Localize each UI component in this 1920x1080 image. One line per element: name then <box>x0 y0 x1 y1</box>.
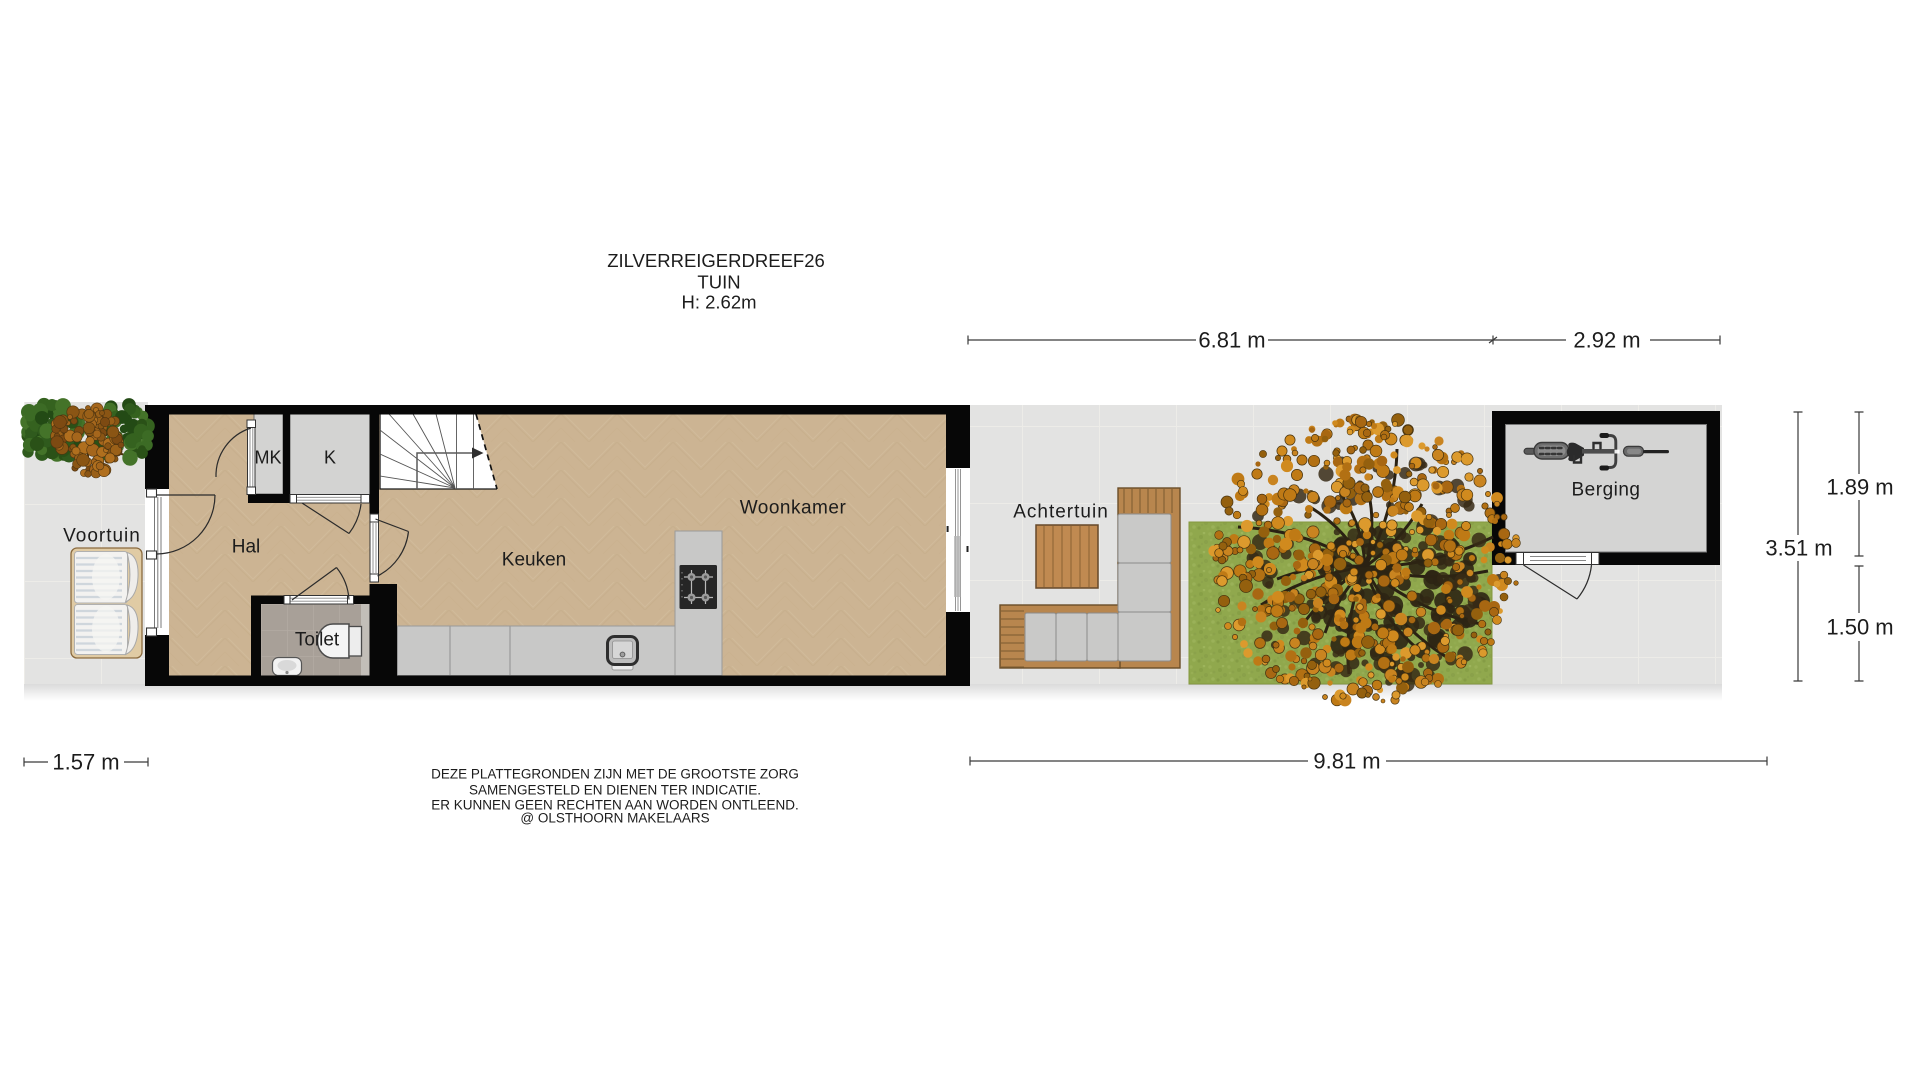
svg-text:6.81 m: 6.81 m <box>1198 328 1265 353</box>
svg-text:MK: MK <box>255 448 282 468</box>
svg-text:Woonkamer: Woonkamer <box>740 498 847 519</box>
svg-text:3.51 m: 3.51 m <box>1765 536 1832 561</box>
svg-text:@ OLSTHOORN MAKELAARS: @ OLSTHOORN MAKELAARS <box>520 811 709 826</box>
svg-text:Voortuin: Voortuin <box>63 526 141 547</box>
svg-text:SAMENGESTELD EN DIENEN TER IND: SAMENGESTELD EN DIENEN TER INDICATIE. <box>469 783 761 798</box>
svg-text:Hal: Hal <box>232 537 261 558</box>
svg-text:K: K <box>324 448 336 468</box>
svg-text:1.57 m: 1.57 m <box>52 750 119 775</box>
svg-text:1.89 m: 1.89 m <box>1826 475 1893 500</box>
svg-text:Berging: Berging <box>1572 480 1641 501</box>
svg-text:2.92 m: 2.92 m <box>1573 328 1640 353</box>
svg-text:H: 2.62m: H: 2.62m <box>681 292 756 313</box>
svg-text:DEZE PLATTEGRONDEN ZIJN MET DE: DEZE PLATTEGRONDEN ZIJN MET DE GROOTSTE … <box>431 767 799 782</box>
svg-text:TUIN: TUIN <box>697 272 740 293</box>
svg-text:1.50 m: 1.50 m <box>1826 615 1893 640</box>
svg-text:ZILVERREIGERDREEF26: ZILVERREIGERDREEF26 <box>607 250 825 271</box>
svg-text:9.81 m: 9.81 m <box>1313 749 1380 774</box>
svg-text:Achtertuin: Achtertuin <box>1013 502 1109 523</box>
svg-text:Keuken: Keuken <box>502 550 566 571</box>
svg-text:Toilet: Toilet <box>295 630 340 651</box>
